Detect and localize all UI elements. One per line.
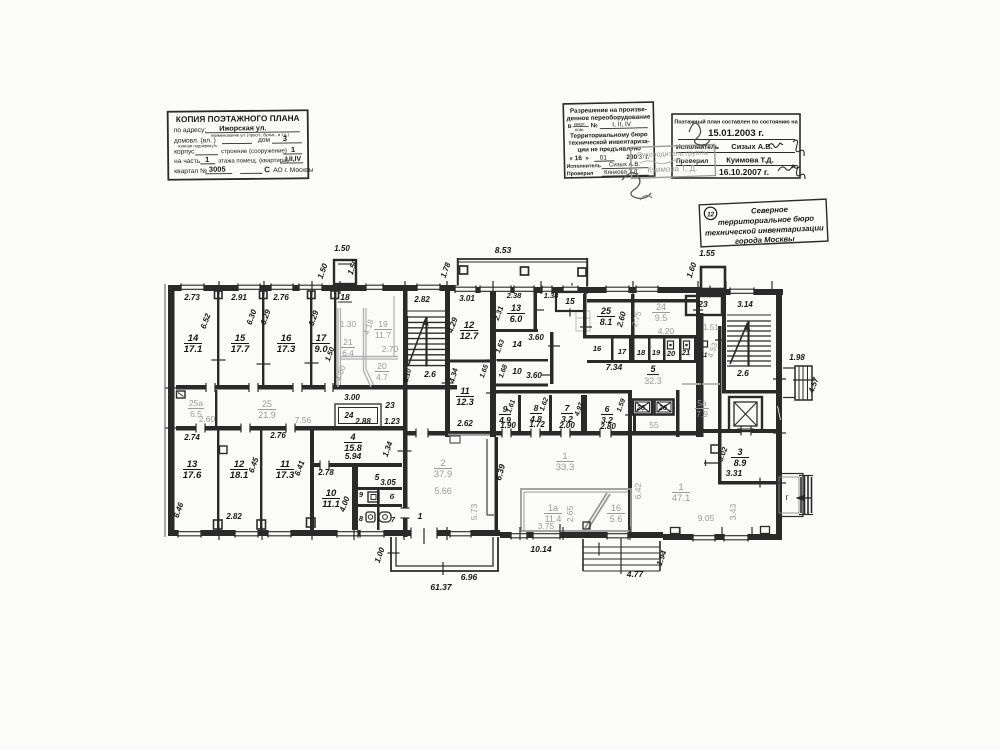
svg-text:2.74: 2.74 [183, 433, 200, 442]
svg-text:2.82: 2.82 [225, 512, 242, 521]
svg-text:3.31: 3.31 [726, 468, 743, 478]
svg-text:ции не предъявлено: ции не предъявлено [577, 145, 641, 153]
svg-text:Северное: Северное [751, 205, 789, 216]
svg-text:2.70: 2.70 [382, 344, 399, 354]
svg-text:3.60: 3.60 [526, 371, 542, 380]
svg-text:«: « [569, 155, 573, 162]
svg-text:18: 18 [340, 292, 350, 302]
svg-text:3005: 3005 [209, 165, 226, 174]
svg-text:12: 12 [707, 211, 715, 218]
svg-text:2.6: 2.6 [423, 369, 436, 379]
svg-text:16: 16 [611, 503, 621, 513]
svg-text:15: 15 [565, 296, 575, 306]
svg-text:7.9: 7.9 [696, 409, 708, 419]
svg-text:20: 20 [666, 349, 676, 358]
svg-text:»: » [585, 155, 589, 162]
svg-text:8.53: 8.53 [495, 245, 512, 255]
svg-text:9.5: 9.5 [655, 313, 668, 323]
svg-text:г: г [785, 492, 788, 502]
svg-text:5.66: 5.66 [434, 486, 452, 496]
svg-text:17: 17 [618, 347, 627, 356]
svg-text:1: 1 [291, 145, 295, 154]
svg-text:12.7: 12.7 [460, 331, 479, 342]
svg-text:2.65: 2.65 [565, 505, 575, 522]
svg-text:3: 3 [737, 447, 742, 457]
svg-text:11.7: 11.7 [375, 330, 391, 340]
svg-text:17: 17 [316, 333, 327, 344]
svg-text:2: 2 [440, 458, 445, 469]
svg-text:2.88: 2.88 [354, 417, 371, 426]
svg-text:2.78: 2.78 [317, 468, 334, 477]
svg-text:на часть: на часть [174, 158, 201, 165]
svg-text:20: 20 [377, 361, 387, 371]
svg-text:1.51: 1.51 [703, 323, 719, 332]
svg-text:5а: 5а [697, 398, 707, 408]
svg-text:1: 1 [678, 482, 683, 493]
svg-text:7.34: 7.34 [606, 362, 623, 372]
svg-text:1.98: 1.98 [789, 353, 805, 362]
svg-text:3: 3 [283, 134, 287, 143]
svg-text:6.4: 6.4 [342, 348, 354, 358]
svg-text:6.42: 6.42 [633, 482, 643, 499]
svg-text:6.0: 6.0 [510, 314, 523, 324]
svg-text:25: 25 [600, 306, 612, 316]
svg-text:23: 23 [697, 299, 708, 309]
svg-text:I,II,IV: I,II,IV [285, 156, 301, 163]
svg-text:2.6: 2.6 [736, 368, 749, 378]
svg-text:4.7: 4.7 [376, 372, 388, 382]
svg-text:37.9: 37.9 [434, 469, 453, 480]
svg-text:47.1: 47.1 [672, 493, 691, 504]
svg-text:15: 15 [235, 333, 246, 344]
svg-text:10: 10 [326, 488, 337, 499]
svg-text:Сизых А.В.: Сизых А.В. [609, 161, 641, 169]
svg-text:2.73: 2.73 [183, 293, 200, 302]
svg-text:16.10.2007 г.: 16.10.2007 г. [719, 167, 769, 177]
svg-text:наименование ул. (просп., буль: наименование ул. (просп., бульв., и т.д.… [211, 132, 290, 138]
svg-text:6: 6 [605, 404, 610, 414]
svg-text:1.30: 1.30 [340, 319, 357, 329]
svg-text:7.56: 7.56 [295, 415, 312, 425]
svg-text:25: 25 [262, 399, 272, 409]
svg-text:3.00: 3.00 [344, 393, 360, 402]
svg-text:17.7: 17.7 [231, 344, 250, 355]
svg-text:I, II, IV: I, II, IV [612, 121, 632, 128]
svg-text:1: 1 [205, 155, 209, 164]
svg-text:18: 18 [637, 348, 646, 357]
svg-text:1.38: 1.38 [544, 291, 559, 300]
svg-text:2.62: 2.62 [456, 419, 473, 428]
svg-text:2.60: 2.60 [199, 414, 216, 424]
svg-text:2.82: 2.82 [413, 295, 430, 304]
svg-text:этажа помещ. (квартира): этажа помещ. (квартира) [218, 157, 289, 165]
svg-text:17.3: 17.3 [277, 344, 296, 355]
svg-text:квартал №: квартал № [174, 168, 207, 175]
svg-text:1: 1 [562, 451, 567, 462]
svg-text:корпус: корпус [174, 148, 195, 155]
svg-text:14: 14 [512, 339, 522, 349]
svg-text:3.05: 3.05 [380, 478, 396, 487]
svg-text:Куимова Т. Д.: Куимова Т. Д. [647, 164, 697, 175]
svg-text:3.75: 3.75 [538, 521, 555, 531]
svg-text:17.1: 17.1 [184, 344, 203, 355]
svg-text:5.6: 5.6 [610, 514, 623, 524]
svg-text:8.1: 8.1 [600, 317, 613, 327]
svg-text:24: 24 [344, 411, 354, 420]
svg-text:6.96: 6.96 [461, 572, 478, 582]
svg-text:в: в [568, 123, 572, 130]
svg-text:16: 16 [575, 155, 583, 162]
svg-text:24: 24 [656, 302, 666, 312]
svg-text:61.37: 61.37 [430, 582, 453, 592]
svg-text:12: 12 [234, 459, 245, 470]
svg-text:2б: 2б [658, 404, 668, 412]
svg-text:б: б [390, 492, 395, 501]
svg-text:3.43: 3.43 [728, 503, 738, 520]
svg-text:3.01: 3.01 [459, 294, 475, 303]
svg-text:4.20: 4.20 [658, 326, 675, 336]
svg-text:С: С [264, 165, 270, 174]
svg-text:11: 11 [460, 386, 469, 396]
svg-text:4: 4 [349, 432, 355, 442]
svg-text:Кянкова Т.Д.: Кянкова Т.Д. [604, 168, 640, 176]
svg-text:8.9: 8.9 [734, 458, 747, 468]
svg-text:КОПИЯ ПОЭТАЖНОГО ПЛАНА: КОПИЯ ПОЭТАЖНОГО ПЛАНА [176, 113, 300, 124]
svg-text:2.00: 2.00 [558, 421, 575, 430]
svg-text:5.73: 5.73 [469, 503, 479, 520]
svg-text:3.60: 3.60 [528, 333, 544, 342]
svg-text:1.72: 1.72 [529, 420, 545, 429]
svg-text:Ижорская ул.: Ижорская ул. [219, 123, 266, 132]
svg-text:2.80: 2.80 [599, 422, 616, 431]
svg-text:1.50: 1.50 [334, 244, 350, 253]
svg-text:10: 10 [512, 366, 522, 376]
svg-text:16: 16 [281, 333, 292, 344]
svg-text:пом.: пом. [575, 127, 584, 132]
svg-text:2б: 2б [636, 404, 646, 412]
svg-text:13: 13 [187, 459, 198, 470]
svg-text:11: 11 [280, 459, 290, 470]
svg-text:55: 55 [649, 420, 659, 430]
svg-text:25а: 25а [189, 398, 203, 408]
svg-text:13: 13 [511, 303, 521, 313]
svg-text:дом: дом [258, 137, 271, 144]
svg-text:16: 16 [593, 344, 602, 353]
svg-text:11.1: 11.1 [322, 499, 340, 510]
svg-text:12: 12 [464, 320, 475, 331]
svg-text:5: 5 [375, 472, 380, 482]
svg-text:21.9: 21.9 [258, 410, 276, 420]
svg-text:19: 19 [652, 348, 661, 357]
svg-text:2.38: 2.38 [506, 291, 522, 300]
svg-text:32.3: 32.3 [644, 376, 662, 386]
svg-text:строение (сооружение): строение (сооружение) [221, 147, 287, 155]
svg-text:18.1: 18.1 [230, 470, 249, 481]
svg-text:15.01.2003 г.: 15.01.2003 г. [708, 128, 764, 139]
svg-text:5.94: 5.94 [345, 451, 362, 461]
svg-text:23: 23 [384, 400, 395, 410]
svg-text:Сизых А.В.: Сизых А.В. [731, 142, 772, 151]
svg-text:по адресу:: по адресу: [174, 127, 207, 134]
svg-text:кварт.: кварт. [574, 121, 586, 126]
svg-text:1а: 1а [548, 503, 558, 513]
svg-text:2.91: 2.91 [230, 293, 247, 302]
svg-text:1.55: 1.55 [699, 249, 715, 258]
svg-text:10.14: 10.14 [530, 544, 552, 554]
svg-text:1.90: 1.90 [500, 421, 516, 430]
svg-text:Проверил: Проверил [567, 171, 594, 178]
svg-text:4.77: 4.77 [626, 569, 645, 579]
svg-text:21: 21 [343, 337, 353, 347]
svg-text:14: 14 [188, 333, 199, 344]
svg-text:АО г. Москвы: АО г. Москвы [273, 167, 313, 174]
svg-text:12.3: 12.3 [456, 397, 474, 407]
svg-text:№: № [591, 122, 598, 129]
svg-text:17.6: 17.6 [183, 470, 202, 481]
svg-text:1: 1 [418, 511, 423, 521]
svg-text:2.76: 2.76 [272, 293, 289, 302]
svg-text:17.3: 17.3 [276, 470, 295, 481]
svg-text:19: 19 [378, 319, 388, 329]
svg-text:33.3: 33.3 [556, 462, 575, 473]
svg-text:2.76: 2.76 [269, 431, 286, 440]
svg-text:8: 8 [534, 403, 539, 413]
svg-text:3.14: 3.14 [737, 300, 753, 309]
svg-text:1.23: 1.23 [384, 417, 400, 426]
svg-text:9.05: 9.05 [698, 513, 715, 523]
svg-text:21: 21 [681, 348, 690, 357]
svg-text:Куимова Т.Д.: Куимова Т.Д. [726, 156, 773, 165]
svg-text:Исполнитель: Исполнитель [566, 163, 600, 170]
